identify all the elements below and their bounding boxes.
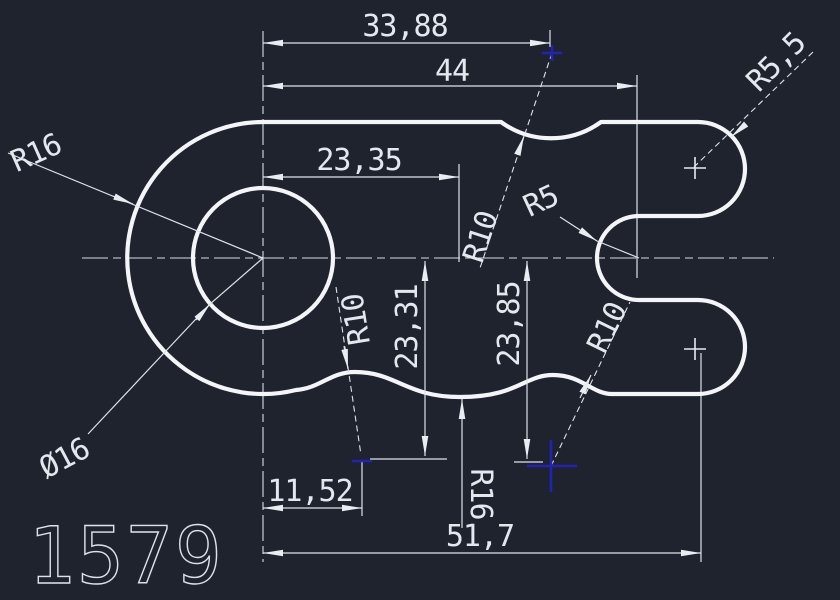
- leader-r5-slot[interactable]: [560, 217, 597, 241]
- dim-text-33-88[interactable]: 33,88: [362, 9, 447, 44]
- dim-text-11-52[interactable]: 11,52: [267, 474, 352, 509]
- leader-r10-dip-arrow: [518, 136, 524, 153]
- cad-canvas[interactable]: 33,88 44 23,35 11,52 51,7 23,31 23,85 R1…: [0, 0, 840, 600]
- center-mark-lower-cap: [684, 338, 706, 360]
- radius-text-r5-slot[interactable]: R5: [518, 178, 564, 224]
- drawing-number[interactable]: 1579: [28, 512, 224, 600]
- centerlines: [82, 31, 774, 562]
- dim-text-51-7[interactable]: 51,7: [446, 519, 514, 554]
- center-mark-upper-cap: [684, 157, 706, 179]
- radius-text-r10-wave-right[interactable]: R10: [581, 297, 635, 358]
- leader-r5-slot-tail: [597, 241, 639, 258]
- dimension-texts: 33,88 44 23,35 11,52 51,7 23,31 23,85 R1…: [6, 9, 813, 554]
- point-markers: [352, 45, 706, 492]
- part-outline[interactable]: [127, 122, 745, 397]
- snap-point-top: [542, 45, 562, 61]
- leader-r5-5-arrow: [731, 125, 745, 137]
- leader-r16-lobe-arrow: [113, 196, 133, 204]
- dim-text-44[interactable]: 44: [435, 54, 469, 89]
- cad-drawing-view[interactable]: 33,88 44 23,35 11,52 51,7 23,31 23,85 R1…: [0, 0, 840, 600]
- dim-text-23-31[interactable]: 23,31: [390, 284, 425, 369]
- radius-text-r16-sag[interactable]: R16: [463, 468, 498, 519]
- snap-point-bottom-large: [527, 440, 577, 492]
- dim-text-23-85[interactable]: 23,85: [492, 281, 527, 366]
- part-geometry: [127, 122, 745, 397]
- radius-text-r16-lobe[interactable]: R16: [6, 127, 67, 180]
- leader-dia16-arrow: [196, 304, 210, 320]
- leader-r16-lobe[interactable]: [8, 153, 263, 258]
- dim-text-23-35[interactable]: 23,35: [316, 143, 401, 178]
- radius-text-r10-wave-left[interactable]: R10: [335, 291, 378, 347]
- diameter-text-hole[interactable]: Ø16: [34, 431, 96, 486]
- leader-dia16-hole[interactable]: [88, 258, 263, 434]
- leader-r10-wave-left-arrow: [344, 346, 348, 369]
